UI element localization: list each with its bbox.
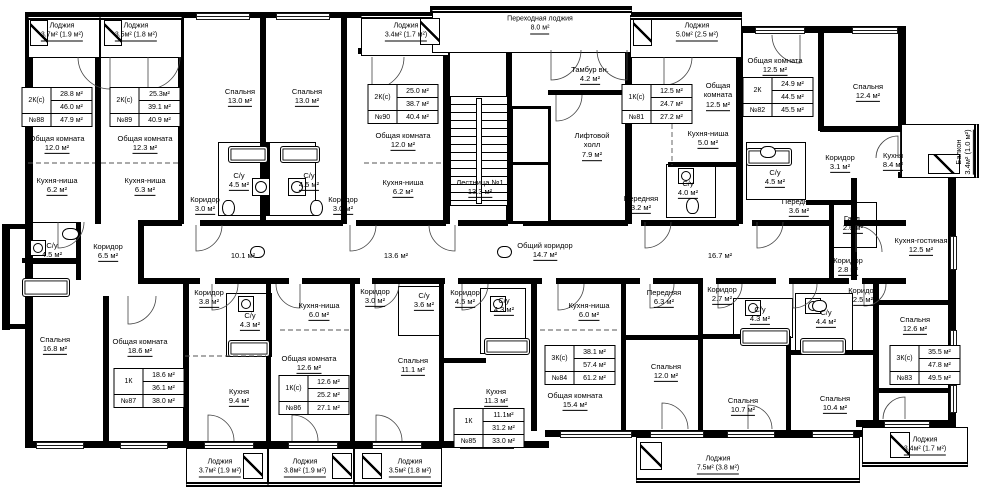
room-label: Общая комната12.0 м² (376, 131, 431, 151)
room-name: Кухня (229, 387, 249, 396)
room-name: Общая комната (30, 134, 85, 143)
door-arc (757, 222, 783, 248)
room-label: Спальня13.0 м² (225, 87, 255, 107)
table-cell: 12.5 м² (651, 85, 692, 98)
room-area: 4.5 м² (765, 177, 785, 188)
table-cell: 47.8 м² (919, 359, 960, 372)
room-label: Общая комната15.4 м² (548, 391, 603, 411)
room-name: Спальня (820, 394, 850, 403)
door-arc (208, 415, 234, 441)
room-name: Спальня (225, 87, 255, 96)
table-cell: 2К(с) (22, 88, 51, 114)
table-cell: 1К (114, 369, 143, 395)
room-label: Балкон3.4м² (1.0 м²) (954, 129, 974, 174)
table-cell: №88 (22, 114, 51, 127)
room-name: Коридор (450, 288, 480, 297)
room-label: Общий коридор14.7 м² (517, 241, 572, 261)
table-cell: 61.2 м² (574, 372, 615, 385)
room-label: Кухня-ниша6.3 м² (124, 176, 165, 196)
room-name: Кухня (883, 151, 903, 160)
room-label: С/у4.5 м² (299, 171, 319, 191)
room-area: 2.7 м² (712, 294, 732, 305)
room-area: 4.3 м² (240, 320, 260, 331)
room-label: Общая комната12.5 м² (748, 56, 803, 76)
room-name: Кухня-ниша (568, 301, 609, 310)
room-label: Спальня12.4 м² (853, 82, 883, 102)
table-cell: №87 (114, 395, 143, 408)
room-area: 13.0 м² (295, 96, 319, 107)
door-arc (376, 415, 402, 441)
room-name: Общая комната (548, 391, 603, 400)
room-name: С/у (765, 168, 785, 177)
room-label: С/у4.3 м² (240, 311, 260, 331)
table-cell: 2К(с) (110, 88, 139, 114)
room-area: 4.0 м² (678, 188, 698, 199)
room-area: 4.5 м² (455, 297, 475, 308)
room-name: Коридор (825, 153, 855, 162)
table-cell: 40.9 м² (139, 114, 180, 127)
apartment-info-table: 1К11.1м²31.2 м²№8533.0 м² (454, 408, 525, 448)
apartment-info-table: 2К24.9 м²44.5 м²№8245.5 м² (743, 77, 814, 117)
room-area: 12.6 м² (903, 324, 927, 335)
table-cell: №86 (279, 402, 308, 415)
door-arc (78, 57, 110, 89)
room-area: 13.0 м² (228, 96, 252, 107)
table-cell: 1К (454, 409, 483, 435)
room-label: Коридор3.0 м² (328, 195, 358, 215)
room-area: 3.0 м² (195, 204, 215, 215)
room-name: Общая комната (282, 354, 337, 363)
room-label: С/у4.3 м² (494, 296, 514, 316)
room-label: Кухня-ниша6.2 м² (36, 176, 77, 196)
room-area: 3.1 м² (830, 162, 850, 173)
apartment-info-table: 2К(с)25.0 м²38.7 м²№9040.4 м² (368, 84, 439, 124)
table-cell: №84 (545, 372, 574, 385)
table-cell: 25.0 м² (397, 85, 438, 98)
room-name: С/у (42, 241, 62, 250)
room-label: Спальня10.7 м² (728, 396, 758, 416)
room-label: С/у4.3 м² (750, 305, 770, 325)
table-cell: 24.9 м² (772, 78, 813, 91)
loggia-name: Лоджия (41, 23, 83, 32)
room-area: 12.6 м² (297, 363, 321, 374)
room-name: С/у (229, 171, 249, 180)
room-label: 10.1 м² (231, 251, 255, 261)
room-label: Кухня8.4 м² (883, 151, 903, 171)
room-label: Кухня9.4 м² (229, 387, 249, 407)
room-area: 3.2 м² (631, 203, 651, 214)
loggia-name: Лоджия (385, 23, 427, 32)
room-name: Кухня-ниша (687, 129, 728, 138)
loggia-label: Лоджия3.4м² (1.7 м²) (385, 23, 427, 42)
door-arc (292, 415, 318, 441)
table-cell: 27.1 м² (308, 402, 349, 415)
room-name: С/у (494, 296, 514, 305)
room-area: 3.8 м² (199, 297, 219, 308)
room-area: 3.0 м² (365, 296, 385, 307)
room-label: Кухня-гостиная12.5 м² (890, 236, 952, 256)
room-area: 8.4 м² (883, 160, 903, 171)
door-arc (645, 222, 671, 248)
door-arc (793, 284, 817, 308)
room-area: 2.6 м² (843, 223, 863, 234)
room-name: Тамбур вн. (571, 65, 609, 74)
room-name: Кухня-ниша (36, 176, 77, 185)
loggia-area: 3.5м² (1.8 м²) (115, 31, 157, 41)
table-cell: 36.1 м² (143, 382, 184, 395)
room-name: С/у (414, 291, 434, 300)
table-cell: 49.5 м² (919, 372, 960, 385)
room-area: 12.5 м² (706, 100, 730, 111)
room-label: С/у3.6 м² (414, 291, 434, 311)
room-name: Кухня-ниша (382, 178, 423, 187)
apartment-info-table: 3К(с)38.1 м²57.4 м²№8461.2 м² (545, 345, 616, 385)
loggia-area: 8.0 м² (531, 24, 550, 34)
loggia-area: 3.7м² (1.9 м²) (41, 31, 83, 41)
loggia-name: Лоджия (115, 23, 157, 32)
table-cell: 27.2 м² (651, 111, 692, 124)
loggia-label: Лоджия3.7м² (1.9 м²) (41, 23, 83, 42)
room-name: Коридор (93, 242, 123, 251)
table-cell: 18.6 м² (143, 369, 184, 382)
room-label: Общая комната12.6 м² (282, 354, 337, 374)
room-area: 4.5 м² (229, 180, 249, 191)
room-label: С/у4.5 м² (765, 168, 785, 188)
door-arc (128, 296, 156, 324)
room-label: С/у4.5 м² (229, 171, 249, 191)
room-area: 3.4м² (1.0 м²) (963, 129, 974, 174)
table-cell: 25.2 м² (308, 389, 349, 402)
room-area: 3.6 м² (789, 206, 809, 217)
room-area: 5.0 м² (698, 138, 718, 149)
loggia-label: Лоджия3.5м² (1.8 м²) (389, 459, 431, 478)
table-cell: 24.7 м² (651, 98, 692, 111)
room-label: Общая комната12.3 м² (118, 134, 173, 154)
door-arc (148, 57, 180, 89)
room-name: Кухня-гостиная (890, 236, 952, 245)
room-area: 6.3 м² (135, 185, 155, 196)
room-label: 13.6 м² (384, 251, 408, 261)
room-name: Спальня (853, 82, 883, 91)
table-cell: 2К (743, 78, 772, 104)
room-label: Спальня11.1 м² (398, 356, 428, 376)
room-area: 6.0 м² (579, 310, 599, 321)
room-area: 6.2 м² (47, 185, 67, 196)
room-label: С/у4.5 м² (42, 241, 62, 261)
room-label: Лифтовой холл7.9 м² (568, 131, 616, 161)
room-name: С/у (678, 179, 698, 188)
room-area: 4.4 м² (816, 317, 836, 328)
table-cell: №89 (110, 114, 139, 127)
loggia-area: 5.0м² (2.5 м²) (676, 31, 718, 41)
apartment-info-table: 1К(с)12.5 м²24.7 м²№8127.2 м² (622, 84, 693, 124)
room-label: Лестница №113.3 м² (456, 178, 503, 198)
floor-plan: Общая комната12.0 м²Кухня-ниша6.2 м²Обща… (0, 0, 1000, 500)
table-cell: 2К(с) (368, 85, 397, 111)
room-area: 6.0 м² (309, 310, 329, 321)
room-name: Спальня (728, 396, 758, 405)
room-area: 11.1 м² (401, 365, 425, 376)
room-area: 12.0 м² (391, 140, 415, 151)
room-name: Коридор (190, 195, 220, 204)
loggia-label: Лоджия7.5м² (3.8 м²) (697, 456, 739, 475)
room-name: Общая комната (748, 56, 803, 65)
room-area: 18.6 м² (128, 346, 152, 357)
room-name: Коридор (194, 288, 224, 297)
table-cell: 46.0 м² (51, 101, 92, 114)
room-area: 15.4 м² (563, 400, 587, 411)
room-area: 12.0 м² (45, 143, 69, 154)
loggia-label: Лоджия5.0м² (2.5 м²) (676, 23, 718, 42)
room-area: 6.3 м² (654, 297, 674, 308)
door-arc (662, 403, 688, 429)
room-area: 2.8 м² (838, 265, 858, 276)
room-name: С/у (299, 171, 319, 180)
table-cell: 31.2 м² (483, 422, 524, 435)
room-label: Спальня10.4 м² (820, 394, 850, 414)
apartment-info-table: 1К(с)12.6 м²25.2 м²№8627.1 м² (279, 375, 350, 415)
room-area: 4.3 м² (750, 314, 770, 325)
table-cell: 45.5 м² (772, 104, 813, 117)
room-name: Общая комната (113, 337, 168, 346)
room-area: 6.5 м² (98, 251, 118, 262)
table-cell: №81 (622, 111, 651, 124)
table-cell: 44.5 м² (772, 91, 813, 104)
room-name: С/у (750, 305, 770, 314)
room-name: Кухня-ниша (298, 301, 339, 310)
apartment-info-table: 2К(с)28.8 м²46.0 м²№8847.9 м² (22, 87, 93, 127)
table-cell: 38.1 м² (574, 346, 615, 359)
room-area: 11.3 м² (484, 396, 508, 407)
apartment-info-table: 1К18.6 м²36.1 м²№8738.0 м² (114, 368, 185, 408)
loggia-area: 3.8м² (1.9 м²) (284, 467, 326, 477)
room-name: Коридор (707, 285, 737, 294)
table-cell: 39.1 м² (139, 101, 180, 114)
room-area: 9.4 м² (229, 396, 249, 407)
room-name: Спальня (651, 362, 681, 371)
door-arc (664, 57, 692, 85)
table-cell: 35.5 м² (919, 346, 960, 359)
room-label: Передняя6.3 м² (647, 288, 681, 308)
table-cell: №85 (454, 435, 483, 448)
room-label: Коридор3.8 м² (194, 288, 224, 308)
room-area: 3.0 м² (333, 204, 353, 215)
room-name: Балкон (954, 129, 963, 174)
table-cell: 47.9 м² (51, 114, 92, 127)
room-label: Тамбур вн.4.2 м² (571, 65, 609, 85)
room-area: 10.7 м² (731, 405, 755, 416)
loggia-name: Лоджия (284, 459, 326, 468)
room-label: Передняя3.6 м² (782, 197, 816, 217)
room-name: Лифтовой холл (568, 131, 616, 150)
room-label: Коридор6.5 м² (93, 242, 123, 262)
loggia-label: Лоджия3.5м² (1.8 м²) (115, 23, 157, 42)
table-cell: №90 (368, 111, 397, 124)
room-label: Спальня16.8 м² (40, 335, 70, 355)
loggia-area: 3.5м² (1.8 м²) (389, 467, 431, 477)
room-area: 12.0 м² (654, 371, 678, 382)
table-cell: 38.7 м² (397, 98, 438, 111)
table-cell: №83 (890, 372, 919, 385)
table-cell: 3К(с) (545, 346, 574, 372)
apartment-info-table: 3К(с)35.5 м²47.8 м²№8349.5 м² (890, 345, 961, 385)
room-label: Общая комната18.6 м² (113, 337, 168, 357)
room-name: Спальня (398, 356, 428, 365)
room-label: Коридор3.0 м² (360, 287, 390, 307)
room-label: Коридор2.8 м² (833, 256, 863, 276)
room-area: 16.8 м² (43, 344, 67, 355)
table-cell: 38.0 м² (143, 395, 184, 408)
loggia-label: Лоджия3.4м² (1.7 м²) (904, 437, 946, 456)
loggia-name: Лоджия (697, 456, 739, 465)
room-area: 12.5 м² (763, 65, 787, 76)
loggia-name: Переходная лоджия (507, 16, 573, 25)
room-area: 6.2 м² (393, 187, 413, 198)
table-cell: 25.3м² (139, 88, 180, 101)
room-name: Коридор (833, 256, 863, 265)
room-label: Кухня-ниша5.0 м² (687, 129, 728, 149)
loggia-name: Лоджия (199, 459, 241, 468)
table-cell: 3К(с) (890, 346, 919, 372)
room-name: Передняя (647, 288, 681, 297)
room-area: 4.2 м² (580, 74, 600, 85)
door-arc (196, 225, 222, 251)
room-name: Общая комната (118, 134, 173, 143)
table-cell: 1К(с) (622, 85, 651, 111)
room-name: С/у (240, 311, 260, 320)
loggia-area: 3.7м² (1.9 м²) (199, 467, 241, 477)
door-arc (883, 397, 905, 419)
room-label: Спальня12.0 м² (651, 362, 681, 382)
room-name: Передняя (782, 197, 816, 206)
room-area: 10.4 м² (823, 403, 847, 414)
room-name: Гард. (843, 214, 863, 223)
room-name: Спальня (900, 315, 930, 324)
room-name: Коридор (848, 286, 878, 295)
room-area: 2.5 м² (853, 295, 873, 306)
room-label: Кухня11.3 м² (484, 387, 508, 407)
table-cell: 28.8 м² (51, 88, 92, 101)
loggia-name: Лоджия (904, 437, 946, 446)
loggia-label: Лоджия3.8м² (1.9 м²) (284, 459, 326, 478)
table-cell: 57.4 м² (574, 359, 615, 372)
apartment-info-table: 2К(с)25.3м²39.1 м²№8940.9 м² (110, 87, 181, 127)
room-name: Кухня (484, 387, 508, 396)
loggia-area: 3.4м² (1.7 м²) (904, 445, 946, 455)
room-area: 3.6 м² (414, 300, 434, 311)
room-name: Кухня-ниша (124, 176, 165, 185)
room-area: 12.5 м² (909, 245, 933, 256)
room-name: Лестница №1 (456, 178, 503, 187)
table-cell: №82 (743, 104, 772, 117)
room-area: 10.1 м² (231, 251, 255, 261)
room-label: Коридор4.5 м² (450, 288, 480, 308)
room-area: 13.6 м² (384, 251, 408, 261)
loggia-area: 7.5м² (3.8 м²) (697, 464, 739, 474)
room-label: Кухня-ниша6.0 м² (568, 301, 609, 321)
room-label: С/у4.0 м² (678, 179, 698, 199)
room-name: Коридор (328, 195, 358, 204)
room-area: 4.3 м² (494, 305, 514, 316)
room-label: С/у4.4 м² (816, 308, 836, 328)
table-cell: 40.4 м² (397, 111, 438, 124)
room-area: 12.3 м² (133, 143, 157, 154)
room-label: 16.7 м² (708, 251, 732, 261)
room-area: 4.5 м² (42, 250, 62, 261)
loggia-label: Лоджия3.7м² (1.9 м²) (199, 459, 241, 478)
loggia-label: Переходная лоджия8.0 м² (507, 16, 573, 35)
room-label: Гард.2.6 м² (843, 214, 863, 234)
door-arc (350, 225, 376, 251)
loggia-name: Лоджия (389, 459, 431, 468)
room-area: 14.7 м² (533, 250, 557, 261)
room-label: Кухня-ниша6.0 м² (298, 301, 339, 321)
room-label: Кухня-ниша6.2 м² (382, 178, 423, 198)
room-name: Передняя (624, 194, 658, 203)
door-arc (429, 225, 455, 251)
table-cell: 11.1м² (483, 409, 524, 422)
table-cell: 33.0 м² (483, 435, 524, 448)
table-cell: 12.6 м² (308, 376, 349, 389)
room-label: Коридор2.5 м² (848, 286, 878, 306)
room-name: Спальня (40, 335, 70, 344)
room-label: Общая комната12.5 м² (691, 81, 745, 111)
room-name: Спальня (292, 87, 322, 96)
room-area: 4.5 м² (299, 180, 319, 191)
room-area: 12.4 м² (856, 91, 880, 102)
room-label: Передняя3.2 м² (624, 194, 658, 214)
room-area: 7.9 м² (582, 150, 602, 161)
room-label: Коридор3.0 м² (190, 195, 220, 215)
room-name: Общая комната (691, 81, 745, 100)
room-name: Общий коридор (517, 241, 572, 250)
table-cell: 1К(с) (279, 376, 308, 402)
door-arc (276, 284, 300, 308)
room-label: Спальня12.6 м² (900, 315, 930, 335)
room-label: Спальня13.0 м² (292, 87, 322, 107)
loggia-area: 3.4м² (1.7 м²) (385, 31, 427, 41)
loggia-name: Лоджия (676, 23, 718, 32)
room-name: С/у (816, 308, 836, 317)
room-label: Общая комната12.0 м² (30, 134, 85, 154)
door-arc (556, 95, 582, 121)
room-area: 16.7 м² (708, 251, 732, 261)
room-label: Коридор3.1 м² (825, 153, 855, 173)
room-name: Общая комната (376, 131, 431, 140)
room-area: 13.3 м² (468, 187, 492, 198)
room-label: Коридор2.7 м² (707, 285, 737, 305)
room-name: Коридор (360, 287, 390, 296)
